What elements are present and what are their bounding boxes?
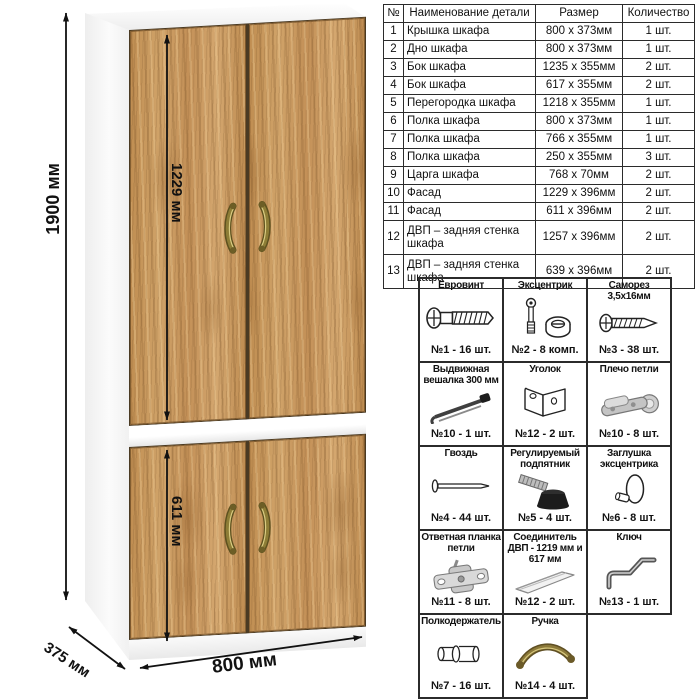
- hardware-item: Соединитель ДВП - 1219 мм и 617 мм №12 -…: [503, 530, 587, 614]
- hardware-item-name: Выдвижная вешалка 300 мм: [421, 364, 501, 386]
- table-row: 6Полка шкафа800 х 373мм1 шт.: [384, 113, 695, 131]
- hardware-item-count: №14 - 4 шт.: [515, 680, 575, 692]
- hardware-item: Плечо петли №10 - 8 шт.: [587, 362, 671, 446]
- parts-table-header: № Наименование детали Размер Количество: [384, 5, 695, 23]
- hardware-item-count: №7 - 16 шт.: [431, 680, 491, 692]
- hardware-item-name: Плечо петли: [600, 364, 659, 375]
- hardware-item-count: №12 - 2 шт.: [515, 428, 575, 440]
- hardware-empty-cell: [587, 614, 671, 698]
- hardware-item-count: №3 - 38 шт.: [599, 344, 659, 356]
- hardware-item: Полкодержатель №7 - 16 шт.: [419, 614, 503, 698]
- handle-icon: [511, 627, 579, 680]
- hardware-item-count: №10 - 8 шт.: [599, 428, 659, 440]
- hardware-item: Заглушка эксцентрика №6 - 8 шт.: [587, 446, 671, 530]
- hardware-item-count: №10 - 1 шт.: [431, 428, 491, 440]
- hardware-item-name: Уголок: [529, 364, 560, 375]
- hardware-item-name: Ответная планка петли: [421, 532, 501, 554]
- dimension-label-upper-door: 1229 мм: [168, 163, 185, 223]
- hardware-item: Ключ №13 - 1 шт.: [587, 530, 671, 614]
- hardware-item-name: Саморез 3,5х16мм: [589, 280, 669, 302]
- hardware-item: Регулируемый подпятник №5 - 4 шт.: [503, 446, 587, 530]
- hardware-item: Ответная планка петли №11 - 8 шт.: [419, 530, 503, 614]
- table-row: 2Дно шкафа800 х 373мм1 шт.: [384, 41, 695, 59]
- table-row: 10Фасад1229 х 396мм2 шт.: [384, 185, 695, 203]
- hardware-item-count: №1 - 16 шт.: [431, 344, 491, 356]
- hardware-item: Евровинт №1 - 16 шт.: [419, 278, 503, 362]
- hardware-item: Ручка №14 - 4 шт.: [503, 614, 587, 698]
- hardware-item-count: №13 - 1 шт.: [599, 596, 659, 608]
- hardware-item-name: Эксцентрик: [518, 280, 572, 291]
- col-header-size: Размер: [536, 5, 623, 23]
- table-row: 12ДВП – задняя стенка шкафа1257 х 396мм2…: [384, 221, 695, 255]
- hardware-item-name: Соединитель ДВП - 1219 мм и 617 мм: [505, 532, 585, 565]
- table-row: 1Крышка шкафа800 х 373мм1 шт.: [384, 23, 695, 41]
- hdf-connector-strip-icon: [510, 565, 580, 596]
- hardware-item-name: Регулируемый подпятник: [505, 448, 585, 470]
- adjustable-foot-icon: [515, 470, 575, 512]
- table-row: 7Полка шкафа766 х 355мм1 шт.: [384, 131, 695, 149]
- hardware-item-count: №4 - 44 шт.: [431, 512, 491, 524]
- table-row: 11Фасад611 х 396мм2 шт.: [384, 203, 695, 221]
- table-row: 5Перегородка шкафа1218 х 355мм1 шт.: [384, 95, 695, 113]
- hardware-item-name: Ключ: [616, 532, 641, 543]
- hardware-item: Гвоздь №4 - 44 шт.: [419, 446, 503, 530]
- hardware-item: Саморез 3,5х16мм №3 - 38 шт.: [587, 278, 671, 362]
- nail-icon: [429, 459, 493, 512]
- hex-key-icon: [597, 543, 661, 596]
- dimension-label-height: 1900 мм: [43, 163, 64, 235]
- hardware-item-name: Заглушка эксцентрика: [589, 448, 669, 470]
- hardware-item-count: №12 - 2 шт.: [515, 596, 575, 608]
- parts-table: № Наименование детали Размер Количество …: [383, 4, 695, 289]
- hardware-item: Уголок №12 - 2 шт.: [503, 362, 587, 446]
- hardware-item-name: Евровинт: [438, 280, 484, 291]
- shelf-pin-icon: [433, 627, 489, 680]
- dimension-arrows: [0, 0, 383, 700]
- pullout-hanger-icon: [425, 386, 497, 428]
- table-row: 3Бок шкафа1235 х 355мм2 шт.: [384, 59, 695, 77]
- hardware-item-name: Ручка: [531, 616, 558, 627]
- euro-screw-icon: [425, 291, 497, 344]
- hardware-item-name: Полкодержатель: [421, 616, 501, 627]
- small-screw-icon: [598, 302, 660, 344]
- eccentric-cam-icon: [513, 291, 577, 344]
- dimension-label-lower-door: 611 мм: [168, 496, 185, 547]
- hardware-item-name: Гвоздь: [444, 448, 477, 459]
- hardware-item-count: №5 - 4 шт.: [518, 512, 572, 524]
- hardware-item: Эксцентрик №2 - 8 комп.: [503, 278, 587, 362]
- hinge-arm-icon: [593, 375, 665, 428]
- corner-bracket-icon: [512, 375, 578, 428]
- hardware-item: Выдвижная вешалка 300 мм №10 - 1 шт.: [419, 362, 503, 446]
- col-header-name: Наименование детали: [404, 5, 536, 23]
- hinge-plate-icon: [426, 554, 496, 596]
- hardware-item-count: №6 - 8 шт.: [602, 512, 656, 524]
- assembly-sheet: 1900 мм 1229 мм 611 мм 375 мм 800 мм № Н…: [0, 0, 700, 700]
- table-row: 8Полка шкафа250 х 355мм3 шт.: [384, 149, 695, 167]
- table-row: 9Царга шкафа768 х 70мм2 шт.: [384, 167, 695, 185]
- cam-cover-cap-icon: [601, 470, 657, 512]
- col-header-qty: Количество: [623, 5, 695, 23]
- hardware-table: Евровинт №1 - 16 шт. Эксцентрик: [418, 277, 672, 699]
- col-header-num: №: [384, 5, 404, 23]
- hardware-item-count: №11 - 8 шт.: [431, 596, 491, 608]
- table-row: 4Бок шкафа617 х 355мм2 шт.: [384, 77, 695, 95]
- hardware-item-count: №2 - 8 комп.: [511, 344, 578, 356]
- wardrobe-illustration: 1900 мм 1229 мм 611 мм 375 мм 800 мм: [0, 0, 383, 700]
